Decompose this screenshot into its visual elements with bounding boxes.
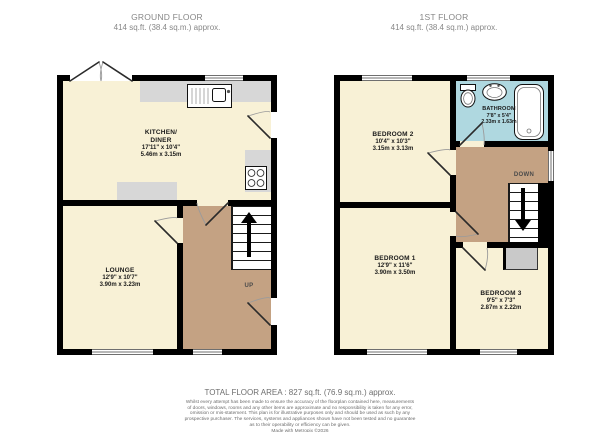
first-floor-area: 414 sq.ft. (38.4 sq.m.) approx. [334, 23, 554, 32]
stair-bulkhead [503, 248, 538, 270]
stairs-down-label: DOWN [502, 172, 546, 178]
bedroom2-label: BEDROOM 2 10'4" x 10'3" 3.15m x 3.13m [343, 131, 443, 154]
sink-icon [187, 84, 232, 108]
down-arrow-icon [515, 220, 531, 231]
interior-wall [340, 202, 456, 208]
window [467, 75, 510, 81]
interior-wall [484, 141, 548, 147]
front-door [241, 294, 277, 330]
stairs-up-label: UP [231, 283, 267, 289]
kitchen-label: KITCHEN/ DINER 17'11" x 10'4" 5.46m x 3.… [101, 129, 221, 159]
interior-wall [450, 236, 456, 349]
ground-floor-plan: UP KITCHEN/ DINER 17'11" x 10'4" 5.46m x… [57, 75, 277, 355]
hob-icon [245, 166, 267, 190]
kitchen-unit [117, 182, 177, 200]
basin-icon [482, 83, 507, 101]
bathroom-label: BATHROOM 7'8" x 5'4" 2.33m x 1.63m [470, 106, 528, 125]
up-arrow-icon [247, 222, 251, 257]
lounge-label: LOUNGE 12'9" x 10'7" 3.90m x 3.23m [63, 267, 177, 290]
kitchen-hall-door [191, 200, 231, 234]
total-floor-area: TOTAL FLOOR AREA : 827 sq.ft. (76.9 sq.m… [0, 388, 600, 397]
kitchen-side-door [241, 107, 277, 139]
window [548, 151, 554, 181]
french-doors [66, 59, 136, 82]
ground-floor-area: 414 sq.ft. (38.4 sq.m.) approx. [57, 23, 277, 32]
disclaimer-line: as to their operability or efficiency ca… [0, 423, 600, 429]
footer: TOTAL FLOOR AREA : 827 sq.ft. (76.9 sq.m… [0, 388, 600, 432]
first-floor-header: 1ST FLOOR 414 sq.ft. (38.4 sq.m.) approx… [334, 12, 554, 32]
window [362, 75, 412, 81]
bedroom1-label: BEDROOM 1 12'9" x 11'6" 3.90m x 3.50m [345, 255, 445, 278]
toilet-icon [458, 84, 478, 108]
ground-floor-title: GROUND FLOOR [57, 12, 277, 22]
lounge-hall-door [151, 214, 185, 248]
interior-wall [177, 243, 183, 349]
window [193, 349, 222, 355]
window [367, 349, 427, 355]
ground-floor-header: GROUND FLOOR 414 sq.ft. (38.4 sq.m.) app… [57, 12, 277, 32]
first-floor-plan: DOWN BEDROOM 2 10'4" x 10'3" 3.15m x 3.1… [334, 75, 554, 355]
bedroom3-label: BEDROOM 3 9'5" x 7'3" 2.87m x 2.22m [460, 290, 542, 313]
first-floor-title: 1ST FLOOR [334, 12, 554, 22]
down-arrow-icon [521, 188, 525, 220]
bedroom3-door [459, 244, 493, 276]
bedroom1-door [452, 208, 484, 242]
window [205, 75, 243, 81]
floorplan-page: GROUND FLOOR 414 sq.ft. (38.4 sq.m.) app… [0, 0, 600, 432]
window [480, 349, 517, 355]
interior-wall [538, 183, 548, 242]
window [92, 349, 153, 355]
